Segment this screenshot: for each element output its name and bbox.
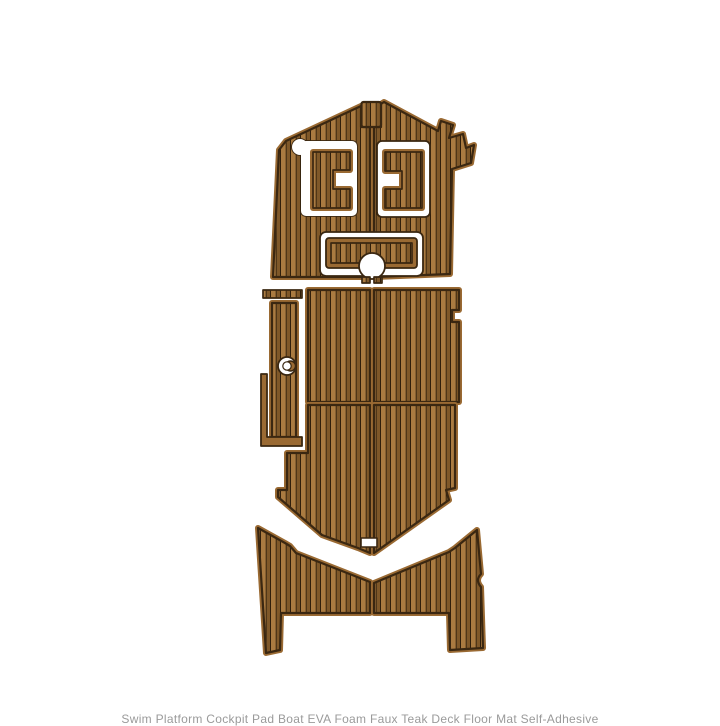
cap-crescent-inner [283,362,291,370]
cockpit-floor-rear-right [374,405,455,553]
product-page: Swim Platform Cockpit Pad Boat EVA Foam … [0,0,720,720]
side-panel-pad [272,303,296,437]
cockpit-floor-front-left [308,290,370,402]
transom-notch [361,538,377,547]
swim-platform-pad-right [374,530,483,650]
product-illustration [0,0,720,720]
bow-bottom-tab-left [362,277,370,283]
hatch-drain-hole [359,253,385,279]
product-caption: Swim Platform Cockpit Pad Boat EVA Foam … [121,713,598,725]
bow-top-tab-pad [362,102,382,127]
side-trim-strip [263,290,302,298]
cockpit-floor-front-right [374,290,459,402]
bow-bottom-tab-right [374,277,382,283]
